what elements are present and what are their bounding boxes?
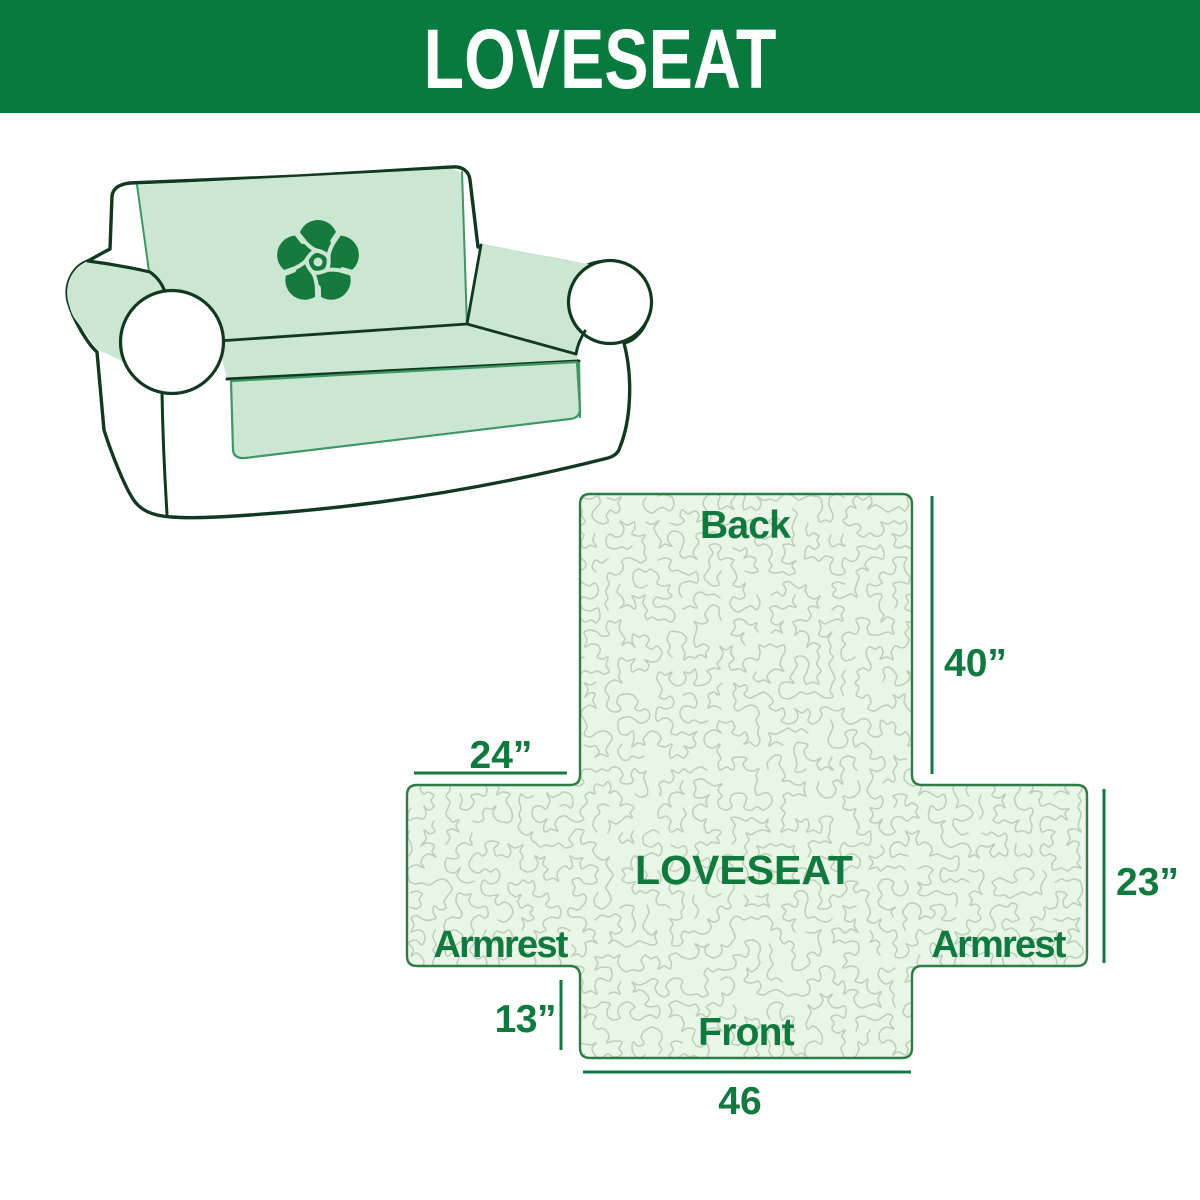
svg-text:40”: 40” [944, 642, 1007, 685]
svg-text:13”: 13” [495, 998, 556, 1041]
svg-text:LOVESEAT: LOVESEAT [635, 847, 853, 893]
svg-text:LOVESEAT: LOVESEAT [424, 12, 777, 106]
svg-text:Armrest: Armrest [931, 924, 1066, 966]
svg-text:Front: Front [698, 1011, 794, 1054]
svg-text:46: 46 [718, 1080, 761, 1123]
svg-text:24”: 24” [470, 734, 533, 777]
svg-text:Armrest: Armrest [433, 924, 568, 966]
svg-text:Back: Back [700, 504, 791, 547]
svg-text:23”: 23” [1116, 861, 1179, 904]
